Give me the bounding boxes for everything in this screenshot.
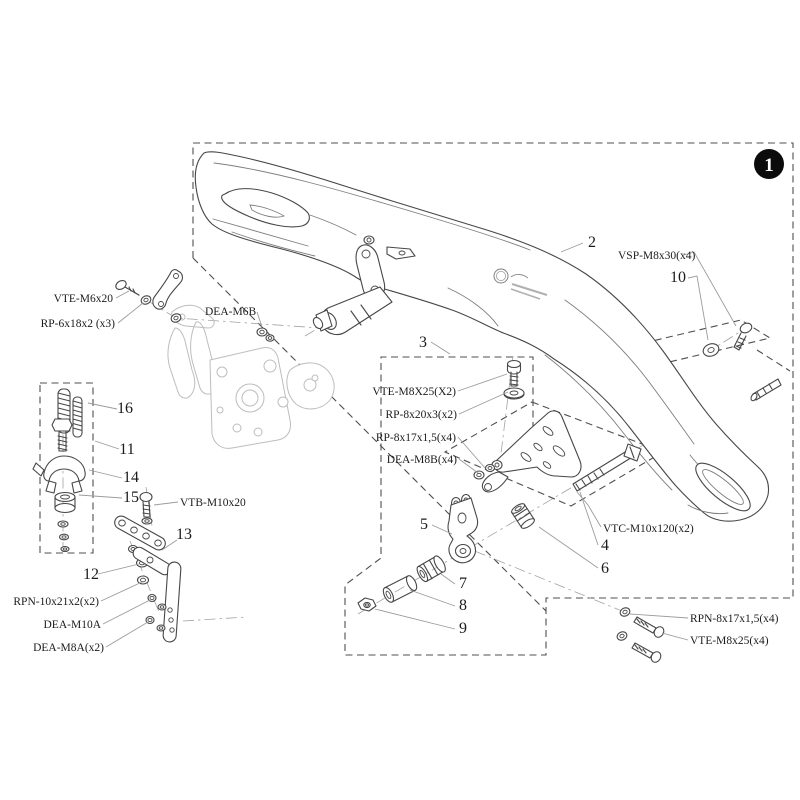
part-number-14: 14 xyxy=(123,469,139,486)
label-dea-m6b: DEA-M6B xyxy=(205,306,256,318)
part-number-13: 13 xyxy=(176,526,192,543)
part-number-15: 15 xyxy=(123,489,139,506)
triangle-bracket xyxy=(482,411,581,492)
crash-bar-drawing xyxy=(195,152,768,521)
plate-13-upper xyxy=(112,514,167,553)
part-number-12: 12 xyxy=(83,566,99,583)
lever-5 xyxy=(448,495,478,563)
part-number-8: 8 xyxy=(459,597,467,614)
bushing-6 xyxy=(510,502,536,530)
label-vte-m6x20: VTE-M6x20 xyxy=(54,293,114,305)
plate-washers xyxy=(146,595,166,632)
vtc-bolt-1 xyxy=(573,444,641,491)
label-dea-m8b: DEA-M8B(x4) xyxy=(387,454,457,466)
hex-bolt xyxy=(52,419,72,451)
left-kit-parts xyxy=(33,389,85,552)
badge-number: 1 xyxy=(764,155,774,176)
diagram-canvas: VTE-M6x20 RP-6x18x2 (x3) DEA-M6B VSP-M8x… xyxy=(0,0,800,800)
label-dea-m10a: DEA-M10A xyxy=(44,619,102,631)
part-number-2: 2 xyxy=(588,234,596,251)
part-number-9: 9 xyxy=(459,620,467,637)
label-vte-m8x25-kit: VTE-M8X25(X2) xyxy=(372,386,456,398)
vtb-m10x20-screw xyxy=(140,493,152,525)
clamp-part xyxy=(33,456,85,493)
label-vtc-m10x120: VTC-M10x120(x2) xyxy=(603,523,694,535)
figure-number-badge: 1 xyxy=(754,149,784,179)
screw-1 xyxy=(634,617,666,639)
label-rpn-10x21x2: RPN-10x21x2(x2) xyxy=(13,596,99,608)
exploded-parts-diagram: VTE-M6x20 RP-6x18x2 (x3) DEA-M6B VSP-M8x… xyxy=(0,0,800,800)
lower-linkage-parts xyxy=(358,495,478,612)
vtc-bolt-2 xyxy=(750,379,781,402)
label-rp-8x17x15-kit: RP-8x17x1,5(x4) xyxy=(376,432,456,444)
label-rpn-8x17x15: RPN-8x17x1,5(x4) xyxy=(690,613,779,625)
part-number-3: 3 xyxy=(419,334,427,351)
label-dea-m8a: DEA-M8A(x2) xyxy=(33,642,104,654)
frame-reference-drawing xyxy=(168,305,334,448)
screw-2 xyxy=(632,643,663,664)
part-number-5: 5 xyxy=(420,516,428,533)
part-number-6: 6 xyxy=(601,560,609,577)
part-number-10: 10 xyxy=(670,269,686,286)
part-number-7: 7 xyxy=(459,575,467,592)
label-vte-m8x25: VTE-M8x25(x4) xyxy=(690,635,769,647)
part-number-4: 4 xyxy=(601,537,609,554)
label-vsp-m8x30: VSP-M8x30(x4) xyxy=(618,250,695,262)
label-vtb-m10x20: VTB-M10x20 xyxy=(180,497,246,509)
bushing-15 xyxy=(55,493,75,513)
dea-m6b-washers xyxy=(257,328,274,341)
label-rp-6x18x2: RP-6x18x2 (x3) xyxy=(41,318,116,330)
link-plates-and-stack xyxy=(112,493,181,643)
nut-9 xyxy=(358,598,376,611)
label-rp-8x20x3: RP-8x20x3(x2) xyxy=(385,409,457,421)
bushing-7 xyxy=(415,554,448,583)
part-number-11: 11 xyxy=(119,441,134,458)
part-number-16: 16 xyxy=(117,400,133,417)
